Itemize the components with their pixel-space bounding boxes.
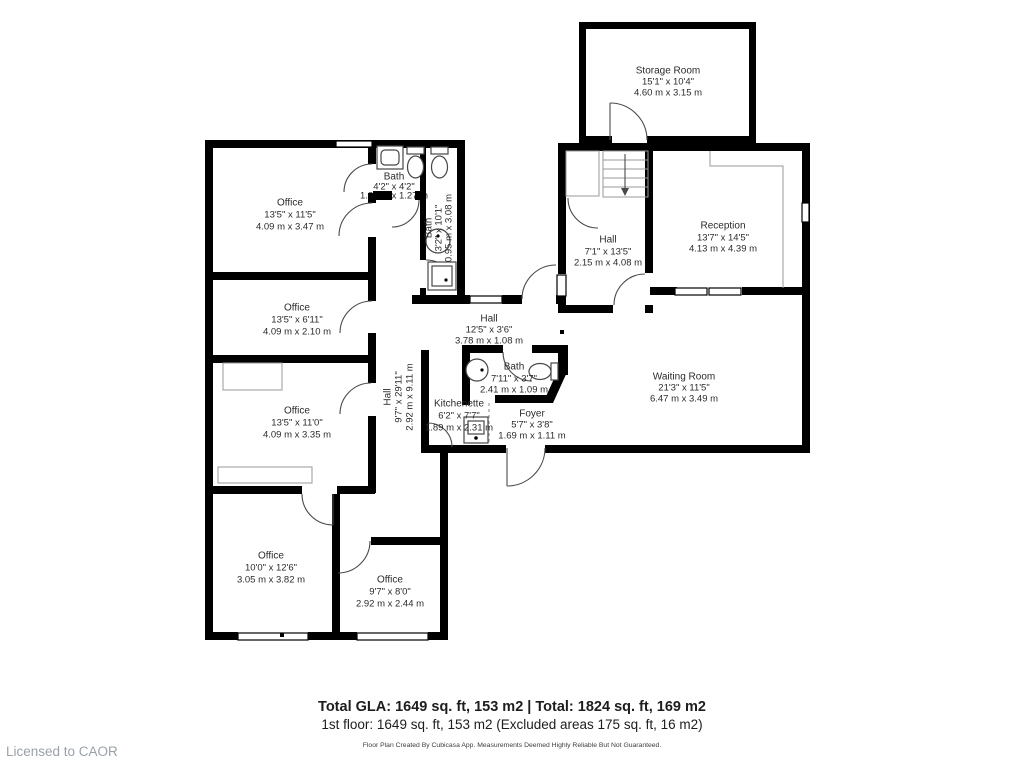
svg-text:1.69 m x 1.11 m: 1.69 m x 1.11 m [498,431,565,442]
svg-text:Office: Office [277,198,303,209]
svg-text:10'0" x 12'6": 10'0" x 12'6" [245,563,297,574]
svg-text:3.05 m x 3.82 m: 3.05 m x 3.82 m [237,575,305,586]
svg-text:4.09 m x 2.10 m: 4.09 m x 2.10 m [263,327,331,338]
svg-text:9'7" x 29'11": 9'7" x 29'11" [394,371,405,422]
room-label-kitchenette: Kitchenette 6'2" x 7'7" 1.89 m x 2.31 m [425,399,493,434]
svg-text:Kitchenette: Kitchenette [434,399,484,410]
svg-text:9'7" x 8'0": 9'7" x 8'0" [369,587,411,598]
storage-door-arc [610,103,647,140]
window-reception-bottom-1 [675,288,707,295]
toilet-icon [431,147,448,154]
room-label-waiting: Waiting Room 21'3" x 11'5" 6.47 m x 3.49… [650,372,718,405]
svg-text:4.09 m x 3.47 m: 4.09 m x 3.47 m [256,222,324,233]
svg-text:Office: Office [377,575,403,586]
desk [223,363,282,390]
room-label-office3: Office 13'5" x 11'0" 4.09 m x 3.35 m [263,406,331,441]
license-text: Licensed to CAOR [6,744,118,759]
svg-text:Foyer: Foyer [519,409,545,420]
room-label-office4: Office 10'0" x 12'6" 3.05 m x 3.82 m [237,551,305,586]
window-office4-bottom [238,633,308,640]
room-label-hall-vertical: Hall 9'7" x 29'11" 2.92 m x 9.11 m [383,363,416,430]
svg-text:Bath: Bath [504,362,525,373]
svg-text:Hall: Hall [599,235,616,246]
room-label-foyer: Foyer 5'7" x 3'8" 1.69 m x 1.11 m [498,409,565,442]
footer-disclaimer: Floor Plan Created By Cubicasa App. Meas… [0,742,1024,749]
hall-middle-door [522,265,556,299]
svg-text:13'7" x 14'5": 13'7" x 14'5" [697,233,749,244]
hall-to-waiting-door [614,274,645,305]
svg-text:Hall: Hall [383,388,394,405]
office2-door [340,301,372,333]
closet [566,151,599,196]
svg-text:12'5" x 3'6": 12'5" x 3'6" [466,325,513,336]
svg-text:Waiting Room: Waiting Room [653,372,715,383]
svg-text:2.92 m x 9.11 m: 2.92 m x 9.11 m [405,363,416,430]
stairs-down-arrow [621,188,629,196]
svg-text:Office: Office [284,303,310,314]
window-reception-bottom-2 [709,288,741,295]
svg-text:7'11" x 3'7": 7'11" x 3'7" [491,374,537,385]
svg-text:Reception: Reception [700,221,745,232]
room-label-bath-top: Bath 4'2" x 4'2" [373,172,415,193]
svg-text:13'5" x 6'11": 13'5" x 6'11" [271,315,322,326]
svg-text:3.78 m x 1.08 m: 3.78 m x 1.08 m [455,336,523,347]
window-hall-upper-left [557,275,566,296]
hall-upper-closet-door [568,198,598,228]
svg-text:13'5" x 11'0": 13'5" x 11'0" [271,418,322,429]
window-office1-top [336,141,372,147]
window-hall-middle [470,296,502,303]
office4-door [302,494,333,525]
svg-text:21'3" x 11'5": 21'3" x 11'5" [658,383,709,394]
room-label-reception: Reception 13'7" x 14'5" 4.13 m x 4.39 m [689,221,757,255]
svg-text:4.13 m x 4.39 m: 4.13 m x 4.39 m [689,244,757,255]
room-label-office2: Office 13'5" x 6'11" 4.09 m x 2.10 m [263,303,331,338]
room-label-office5: Office 9'7" x 8'0" 2.92 m x 2.44 m [356,575,424,610]
svg-text:6.47 m x 3.49 m: 6.47 m x 3.49 m [650,394,718,405]
office5-door [338,541,370,573]
toilet-icon [407,147,424,154]
desk [218,467,312,483]
svg-text:5'7" x 3'8": 5'7" x 3'8" [511,420,553,431]
stairs-icon [603,151,648,197]
svg-text:Hall: Hall [480,314,497,325]
floorplan-page: 1.27 m x 1.27 m [0,0,1024,768]
office1-door-b [339,203,372,236]
window-reception-right [802,203,809,222]
toilet-icon [551,363,558,380]
room-label-hall-upper: Hall 7'1" x 13'5" 2.15 m x 4.08 m [574,235,642,269]
svg-text:2.41 m x 1.09 m: 2.41 m x 1.09 m [480,385,548,396]
reception-counter [710,151,783,288]
svg-text:4.09 m x 3.35 m: 4.09 m x 3.35 m [263,430,331,441]
svg-text:1.89 m x 2.31 m: 1.89 m x 2.31 m [425,423,493,434]
svg-text:4'2" x 4'2": 4'2" x 4'2" [373,182,415,193]
round-sink-icon [466,359,488,381]
foyer-entry-door [507,448,545,486]
svg-text:6'2" x 7'7": 6'2" x 7'7" [438,411,480,422]
svg-text:Storage Room: Storage Room [636,66,700,77]
svg-text:13'5" x 11'5": 13'5" x 11'5" [264,210,315,221]
svg-text:2.15 m x 4.08 m: 2.15 m x 4.08 m [574,258,642,269]
svg-text:Office: Office [284,406,310,417]
footer-total-gla: Total GLA: 1649 sq. ft, 153 m2 | Total: … [0,699,1024,715]
svg-text:4.60 m x 3.15 m: 4.60 m x 3.15 m [634,88,702,99]
office1-door-a [344,164,372,192]
svg-text:2.92 m x 2.44 m: 2.92 m x 2.44 m [356,599,424,610]
footer-first-floor: 1st floor: 1649 sq. ft, 153 m2 (Excluded… [0,717,1024,732]
svg-text:7'1" x 13'5": 7'1" x 13'5" [585,247,632,258]
svg-text:15'1" x 10'4": 15'1" x 10'4" [642,77,694,88]
room-label-hall-middle: Hall 12'5" x 3'6" 3.78 m x 1.08 m [455,314,523,347]
svg-text:0.95 m x 3.08 m: 0.95 m x 3.08 m [444,194,455,262]
floorplan-svg: 1.27 m x 1.27 m [0,0,1024,768]
bath-top-door [392,200,419,227]
office3-door [340,383,371,414]
room-label-storage: Storage Room 15'1" x 10'4" 4.60 m x 3.15… [634,66,702,99]
window-office5-bottom [357,633,428,640]
room-label-office1: Office 13'5" x 11'5" 4.09 m x 3.47 m [256,198,324,233]
room-label-bath-narrow: Bath 3'2" x 10'1" 0.95 m x 3.08 m [424,194,455,262]
svg-text:Office: Office [258,551,284,562]
